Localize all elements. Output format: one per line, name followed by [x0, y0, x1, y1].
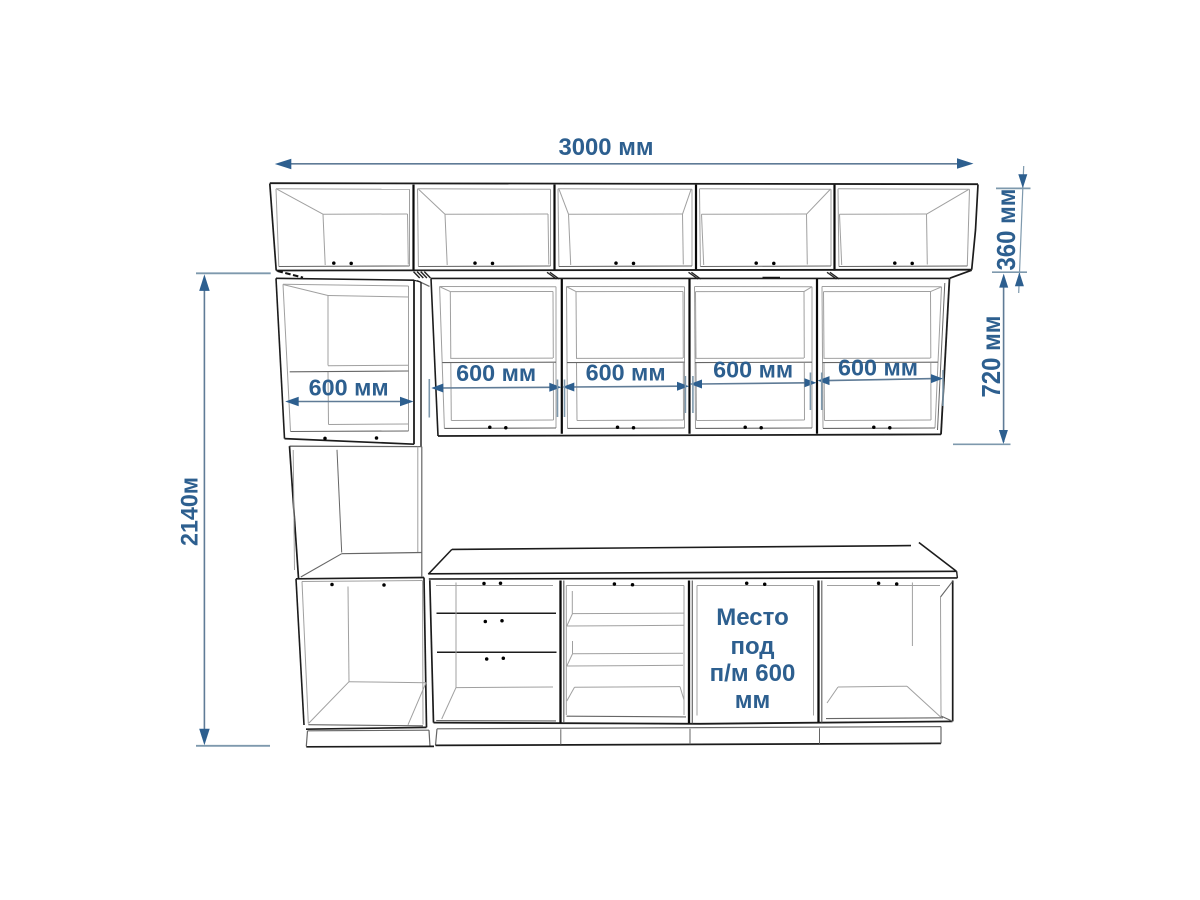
svg-text:600 мм: 600 мм	[713, 357, 793, 383]
svg-text:600 мм: 600 мм	[456, 360, 536, 386]
svg-text:3000 мм: 3000 мм	[559, 134, 654, 161]
svg-text:600 мм: 600 мм	[586, 360, 666, 386]
svg-text:360 мм: 360 мм	[991, 189, 1021, 271]
svg-text:п/м 600: п/м 600	[710, 660, 796, 687]
svg-text:мм: мм	[735, 687, 771, 714]
svg-text:600 мм: 600 мм	[838, 355, 918, 381]
svg-text:720 мм: 720 мм	[976, 316, 1006, 398]
svg-text:Место: Место	[716, 604, 788, 631]
svg-text:600 мм: 600 мм	[309, 375, 389, 401]
svg-text:под: под	[730, 633, 774, 660]
svg-text:2140м: 2140м	[177, 477, 204, 546]
